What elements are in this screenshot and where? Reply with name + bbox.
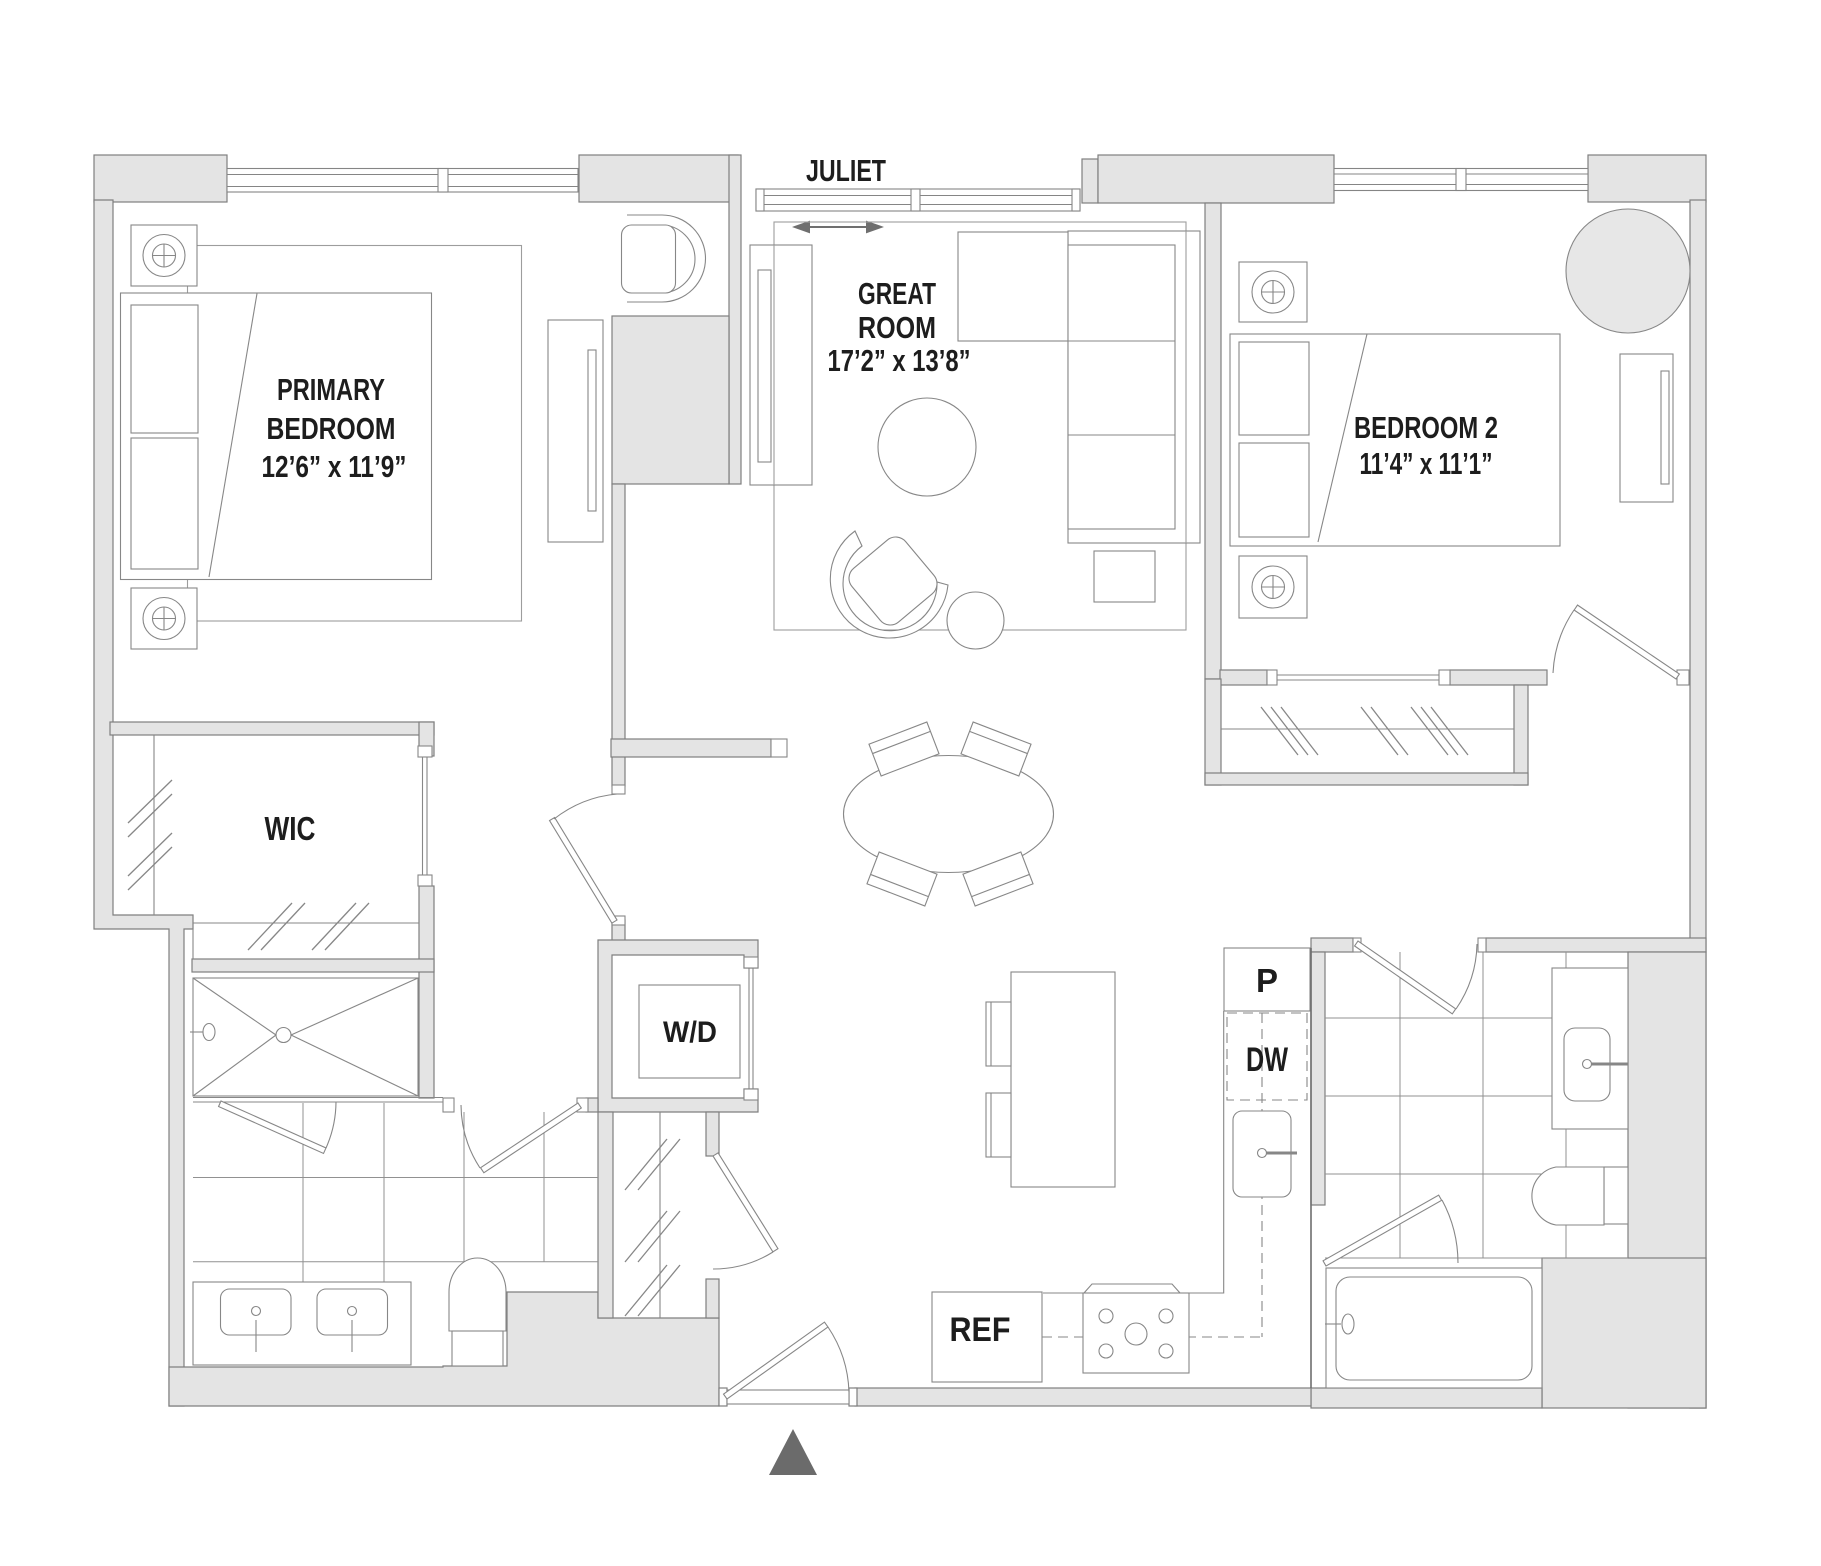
svg-text:12’6” x 11’9”: 12’6” x 11’9” — [262, 449, 407, 484]
svg-text:WIC: WIC — [265, 810, 316, 847]
svg-text:P: P — [1256, 962, 1278, 999]
svg-text:11’4” x 11’1”: 11’4” x 11’1” — [1360, 446, 1493, 481]
svg-text:GREAT: GREAT — [858, 276, 936, 311]
svg-text:PRIMARY: PRIMARY — [277, 372, 385, 407]
svg-text:BEDROOM 2: BEDROOM 2 — [1354, 410, 1498, 445]
svg-text:17’2” x 13’8”: 17’2” x 13’8” — [828, 343, 971, 378]
svg-text:W/D: W/D — [663, 1016, 717, 1049]
svg-text:ROOM: ROOM — [858, 310, 936, 345]
svg-text:REF: REF — [950, 1311, 1011, 1349]
svg-text:BEDROOM: BEDROOM — [267, 411, 396, 446]
svg-text:JULIET: JULIET — [806, 153, 886, 188]
svg-text:DW: DW — [1246, 1041, 1289, 1079]
